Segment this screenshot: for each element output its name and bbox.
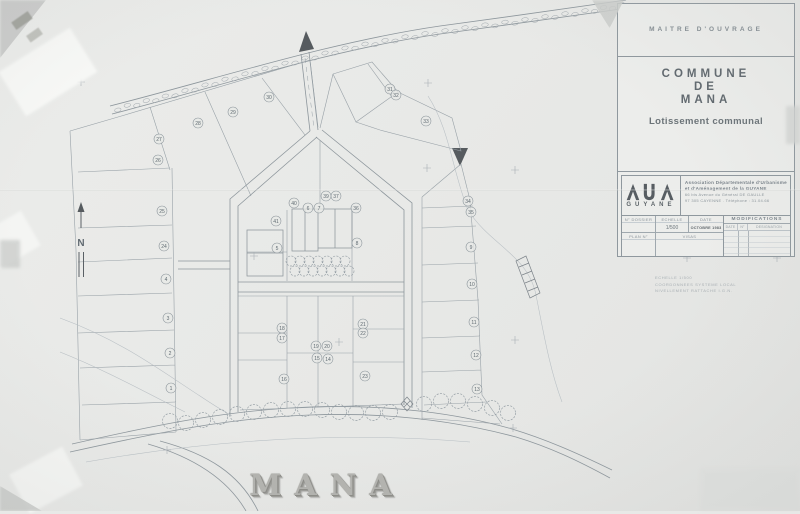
road-stone: [124, 103, 131, 108]
contour-lines: [60, 96, 562, 416]
mod-designation-label: DESIGNATION: [748, 224, 790, 230]
cartouche-inner: GUYANE Association Départementale d'Urba…: [621, 175, 791, 257]
tree-icon: [417, 397, 432, 412]
road-stone-texture: [114, 2, 625, 113]
tree-icon: [331, 256, 341, 266]
lot-number: 28: [195, 121, 201, 127]
tree-icon: [299, 266, 309, 276]
lot-number: 35: [468, 210, 474, 216]
tree-icon: [322, 256, 332, 266]
commune-title: COMMUNE DE MANA: [618, 68, 794, 107]
lot-number: 23: [362, 374, 368, 380]
road-stone: [381, 38, 388, 43]
tree-icon: [286, 256, 296, 266]
hatched-structure-icon: [516, 256, 540, 298]
road-stone: [162, 93, 169, 98]
tree-icon: [326, 266, 336, 276]
road-stone: [541, 14, 548, 19]
road-stone: [521, 17, 528, 22]
lot-number: 19: [313, 344, 319, 350]
road-stone: [501, 20, 508, 25]
survey-cross-icon: [511, 166, 519, 174]
date-label: DATE: [689, 216, 723, 223]
road-stone: [133, 103, 140, 108]
commune-line: DE: [618, 81, 794, 94]
road-stone: [591, 9, 598, 14]
cartouche-top: GUYANE Association Départementale d'Urba…: [622, 176, 790, 216]
echelle-label: ECHELLE: [656, 216, 688, 223]
lot-number: 11: [471, 320, 476, 326]
road-stone: [261, 66, 268, 71]
dossier-label: N° DOSSIER: [622, 216, 655, 223]
tree-icon: [163, 414, 178, 429]
note-nivellement: NIVELLEMENT RATTACHE I.G.N.: [655, 288, 736, 295]
lot-number: 41: [273, 219, 279, 225]
commune-line: COMMUNE: [618, 68, 794, 81]
lot-number: 39: [323, 194, 329, 200]
road-stone: [143, 98, 150, 103]
echelle-cell: ECHELLE 1/500: [656, 216, 689, 232]
tree-icon: [304, 256, 314, 266]
survey-cross-icon: [335, 338, 343, 346]
lot-number: 37: [333, 194, 339, 200]
tree-icon: [308, 266, 318, 276]
lot-number: 13: [474, 387, 480, 393]
tree-icon: [335, 266, 345, 276]
maitre-douvrage-label: MAITRE D'OUVRAGE: [649, 26, 763, 33]
road-stone: [581, 8, 588, 13]
cartouche-section: GUYANE Association Départementale d'Urba…: [618, 172, 794, 260]
lot-number: 22: [360, 331, 366, 337]
tree-icon: [383, 405, 398, 420]
agency-logo-text: GUYANE: [626, 202, 675, 208]
cartouche-row-1: N° DOSSIER ECHELLE 1/500 DATE OCTOBRE 19…: [622, 216, 723, 233]
road-stone: [211, 82, 218, 87]
lot-number: 18: [279, 326, 285, 332]
plan-notes: ECHELLE 1/500 COORDONNEES SYSTEME LOCAL …: [655, 275, 736, 295]
lot-number: 4: [165, 277, 168, 283]
lot-number: 36: [353, 206, 359, 212]
mod-date-label: DATE: [724, 224, 738, 230]
lot-number: 12: [473, 353, 479, 359]
commune-line: MANA: [618, 94, 794, 107]
agency-address: Association Départementale d'Urbanisme e…: [681, 176, 790, 215]
lot-number: 2: [169, 351, 172, 357]
survey-cross-icon: [511, 336, 519, 344]
tree-icon: [485, 401, 500, 416]
dossier-cell: N° DOSSIER: [622, 216, 656, 232]
survey-cross-icon: [423, 164, 431, 172]
lot-number: 26: [155, 158, 161, 164]
survey-cross-icon: [424, 79, 432, 87]
lot-number: 3: [167, 316, 170, 322]
road-stone: [371, 42, 378, 47]
tree-icon: [344, 266, 354, 276]
aua-logo-icon: [624, 183, 678, 201]
scanned-sheet: N 12345678910111213141516171819202122232…: [0, 0, 800, 511]
tree-icon: [298, 402, 313, 417]
plan-no-label: PLAN N°: [622, 233, 655, 240]
modifications-block: MODIFICATIONS DATE N° DESIGNATION: [724, 216, 790, 256]
lot-number: 30: [266, 95, 272, 101]
road-stone: [191, 87, 198, 92]
north-symbol: N: [77, 202, 84, 277]
street-network: [178, 130, 412, 416]
road-stone: [421, 31, 428, 36]
date-value: OCTOBRE 1983: [689, 223, 723, 232]
road-stone: [231, 76, 238, 81]
road-stone: [561, 11, 568, 16]
lot-number: 17: [279, 336, 285, 342]
lot-number: 8: [356, 241, 359, 247]
tree-icon: [313, 256, 323, 266]
echelle-value: 1/500: [656, 223, 688, 232]
road-stone: [441, 28, 448, 33]
lot-number: 21: [360, 322, 366, 328]
lot-number: 20: [324, 344, 330, 350]
road-stone: [331, 50, 338, 55]
tree-icon: [317, 266, 327, 276]
tree-icon: [501, 406, 516, 421]
project-subtitle: Lotissement communal: [618, 116, 794, 127]
road-stone: [401, 34, 408, 39]
road-stone: [181, 88, 188, 93]
road-stone: [571, 12, 578, 17]
tree-icon: [281, 402, 296, 417]
survey-cross-icon: [77, 78, 85, 86]
visas-label: VISAS: [656, 233, 723, 240]
lot-number: 40: [291, 201, 297, 207]
cartouche-table-left: N° DOSSIER ECHELLE 1/500 DATE OCTOBRE 19…: [622, 216, 724, 256]
sheet-title-mana: MANA: [242, 468, 412, 502]
road-stone: [551, 15, 558, 20]
lot-number: 15: [314, 356, 320, 362]
lot-number: 14: [325, 357, 331, 363]
tree-icon: [247, 405, 262, 420]
tree-icon: [230, 407, 245, 422]
agency-logo: GUYANE: [622, 176, 681, 215]
date-cell: DATE OCTOBRE 1983: [689, 216, 723, 232]
tree-icon: [434, 394, 449, 409]
lot-number: 34: [465, 199, 471, 205]
access-road: [301, 52, 318, 131]
modifications-empty-rows: [724, 231, 790, 256]
lot-number: 24: [161, 244, 167, 250]
access-road-centerline: [305, 58, 314, 128]
road-stone: [311, 55, 318, 60]
modifications-label: MODIFICATIONS: [724, 216, 790, 224]
road-stone: [321, 50, 328, 55]
lot-number: 16: [281, 377, 287, 383]
road-stone: [461, 25, 468, 30]
lot-number: 25: [159, 209, 165, 215]
tree-icon: [290, 266, 300, 276]
lot-markers: 1234567891011121314151617181920212223242…: [153, 84, 482, 394]
north-road-arrow-icon: [299, 31, 314, 52]
tree-icon: [315, 403, 330, 418]
survey-cross-icon: [163, 446, 171, 454]
road-stone: [341, 45, 348, 50]
road-stone: [481, 22, 488, 27]
road-stone: [152, 98, 159, 103]
tree-icon: [468, 397, 483, 412]
north-arrowhead-icon: [78, 202, 85, 212]
tree-icon: [366, 406, 381, 421]
lot-number: 10: [469, 282, 475, 288]
lot-number: 1: [170, 386, 173, 392]
north-label: N: [77, 238, 84, 249]
lot-number: 9: [470, 245, 473, 251]
project-title-section: COMMUNE DE MANA Lotissement communal: [618, 68, 794, 172]
lot-number: 32: [393, 93, 399, 99]
lot-number: 7: [318, 206, 321, 212]
lot-number: 6: [307, 206, 310, 212]
lot-number: 5: [276, 246, 279, 252]
cartouche-row-2: PLAN N° VISAS: [622, 233, 723, 256]
title-block: MAITRE D'OUVRAGE COMMUNE DE MANA Lotisse…: [617, 3, 795, 257]
tree-icon: [295, 256, 305, 266]
road-stone: [361, 42, 368, 47]
road-stone: [221, 76, 228, 81]
lot-number: 33: [423, 119, 429, 125]
road-stone: [241, 71, 248, 76]
road-top-edge: [110, 0, 628, 114]
maitre-douvrage-section: MAITRE D'OUVRAGE: [618, 4, 794, 57]
lot-number: 27: [156, 137, 162, 143]
survey-cross-icon: [509, 424, 517, 432]
road-stone: [291, 60, 298, 65]
modifications-subheader: DATE N° DESIGNATION: [724, 224, 790, 231]
road-stone: [600, 5, 607, 10]
tree-icon: [451, 394, 466, 409]
road-stone: [201, 82, 208, 87]
road-bottom-ditch: [86, 437, 470, 462]
road-stone: [171, 93, 178, 98]
tree-icon: [349, 406, 364, 421]
road-stone: [351, 46, 358, 51]
mod-no-label: N°: [738, 224, 748, 230]
tree-icon: [340, 256, 350, 266]
cartouche-table: N° DOSSIER ECHELLE 1/500 DATE OCTOBRE 19…: [622, 216, 790, 256]
road-stone: [281, 60, 288, 65]
agency-address-line: 97 305 CAYENNE . Téléphone : 31.04.66: [685, 198, 787, 204]
visas-cell: VISAS: [656, 233, 723, 256]
dossier-value: [622, 223, 655, 232]
lot-number: 29: [230, 110, 236, 116]
plan-no-cell: PLAN N°: [622, 233, 656, 256]
